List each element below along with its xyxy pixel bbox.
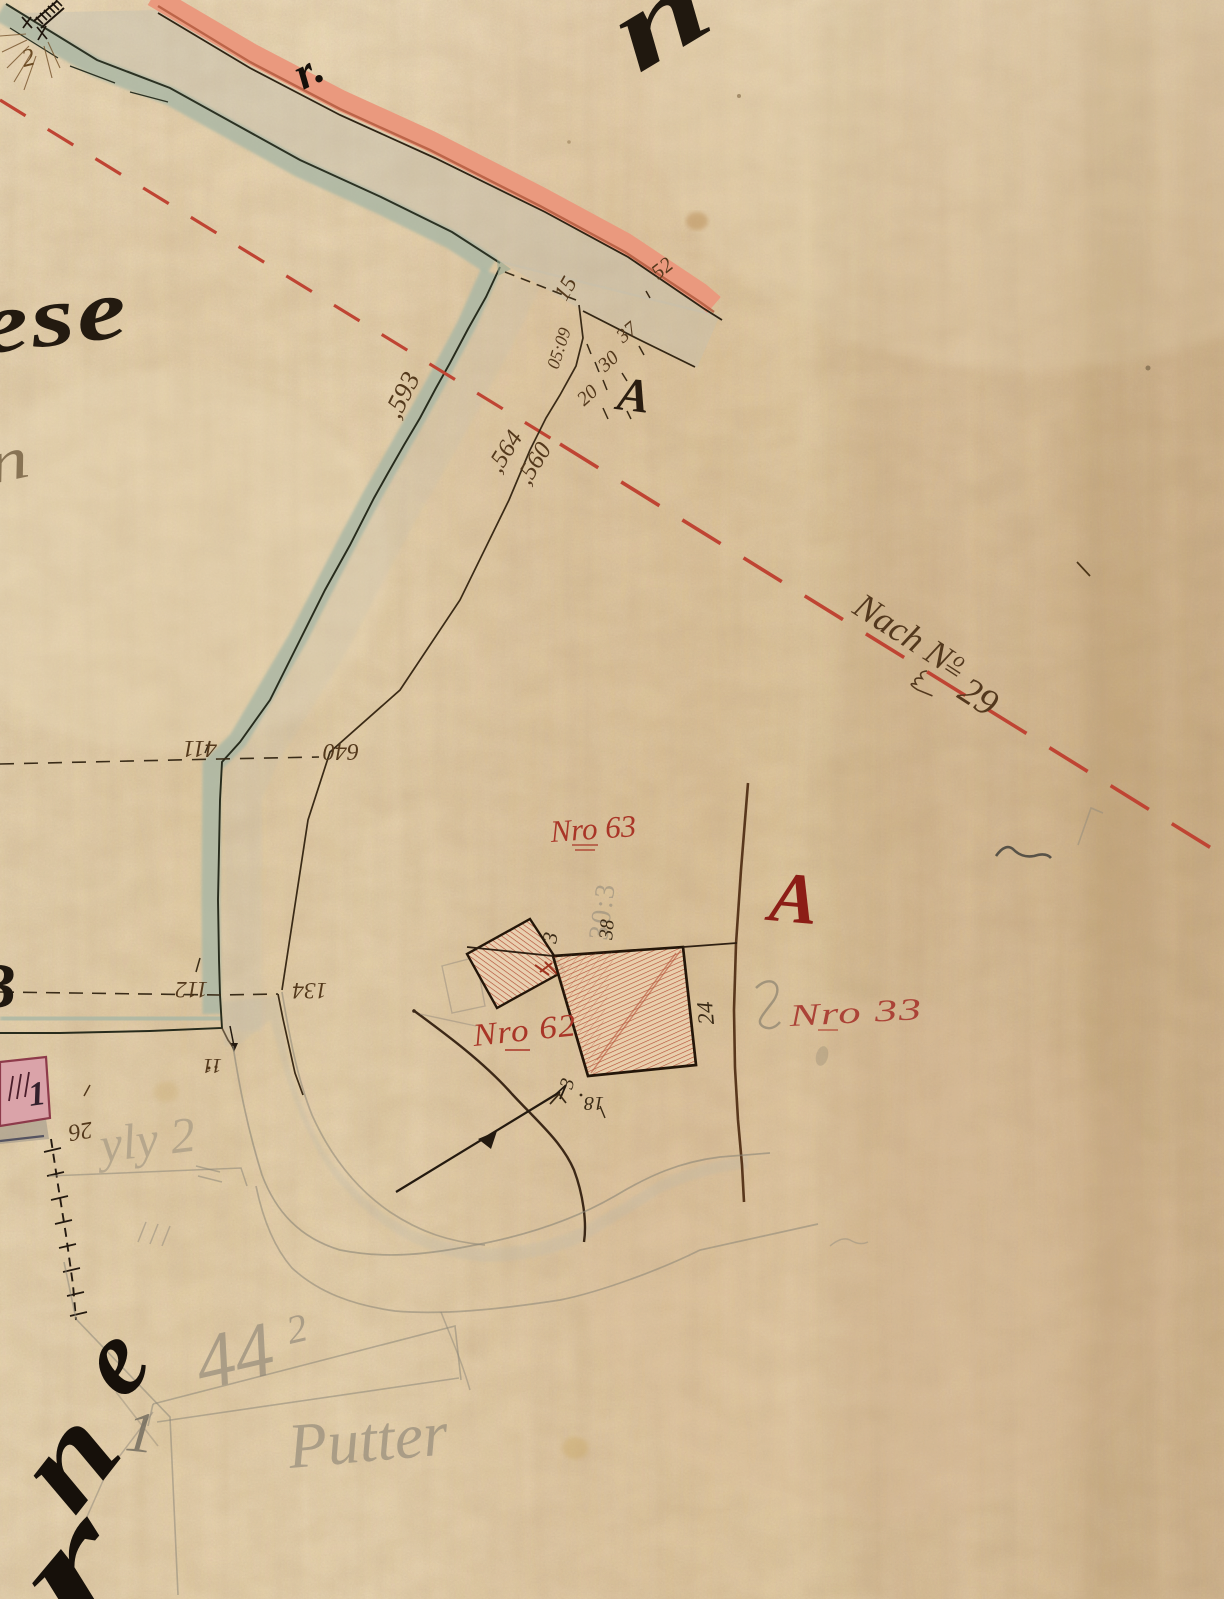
svg-text:134: 134	[293, 978, 328, 1003]
svg-text:26: 26	[66, 1116, 94, 1146]
svg-text:38: 38	[595, 919, 619, 942]
svg-text:11: 11	[203, 1054, 222, 1078]
svg-text:411: 411	[183, 735, 217, 761]
svg-text:Nro 33: Nro 33	[787, 993, 923, 1034]
svg-text:B: B	[0, 950, 16, 1023]
svg-text:18: 18	[584, 1092, 604, 1114]
svg-text:112: 112	[175, 977, 208, 1002]
svg-text:24: 24	[692, 1001, 719, 1026]
svg-text:Putter: Putter	[284, 1397, 452, 1482]
svg-text:Nro 63: Nro 63	[548, 808, 637, 849]
svg-text:640: 640	[323, 738, 359, 764]
svg-text:ese: ese	[0, 259, 134, 372]
